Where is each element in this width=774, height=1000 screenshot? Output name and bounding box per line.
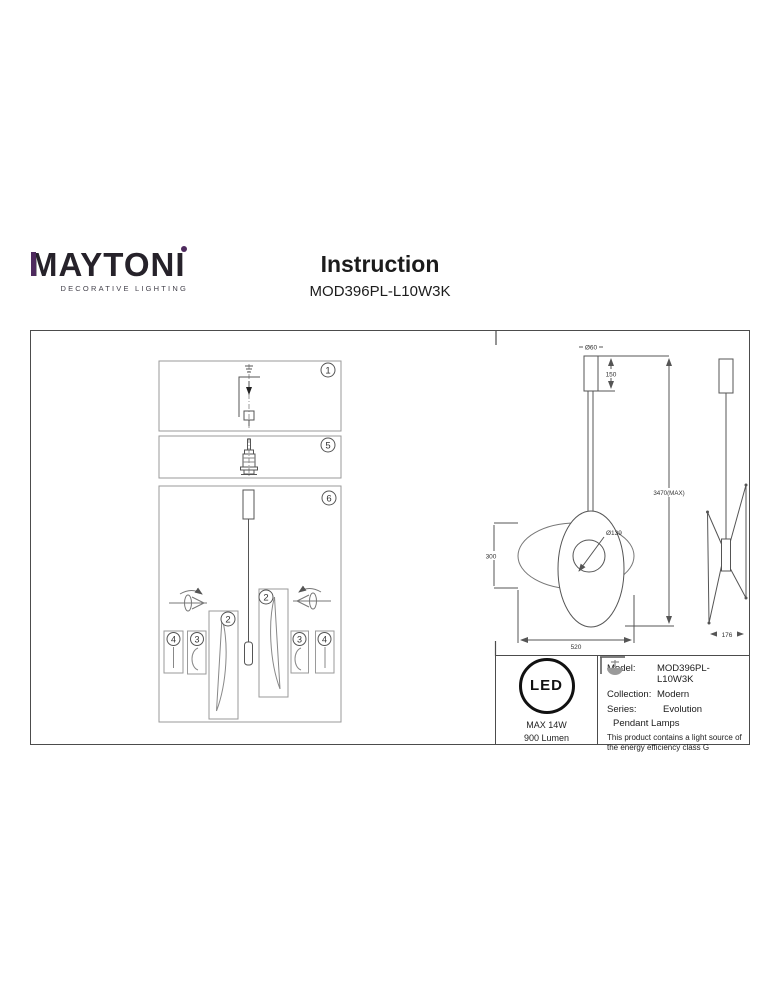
led-logo-icon: LED [519, 658, 575, 714]
brand-logo: MAYTONI DECORATIVE LIGHTING [30, 248, 190, 293]
dim-shade-height: 300 [486, 554, 497, 561]
led-text: LED [530, 677, 563, 694]
step-number-1: 1 [325, 365, 330, 376]
step-badge-1: 1 [321, 363, 335, 377]
diffuser-rotate-left [169, 591, 207, 612]
step-number-3-right: 3 [297, 634, 302, 644]
step-number-5: 5 [325, 440, 330, 451]
energy-efficiency-note: This product contains a light source of … [607, 733, 743, 754]
brand-text: MAYTONI [30, 246, 186, 283]
step1-drawing [239, 364, 260, 428]
step-number-6: 6 [326, 493, 331, 504]
max-power: MAX 14W [526, 720, 567, 730]
step-number-4-right: 4 [322, 634, 327, 644]
dim-side-depth: 176 [722, 632, 733, 639]
spec-row-series: Series: Evolution [607, 704, 743, 715]
step-badge-2-left: 2 [221, 612, 235, 626]
product-info-box: LED MAX 14W 900 Lumen Model: MOD396PL-L1… [495, 655, 750, 745]
brand-name: MAYTONI [30, 248, 190, 281]
instruction-sheet: 1 5 6 2 2 4 3 3 [30, 330, 750, 745]
step-badge-3-left: 3 [191, 633, 204, 646]
step-badge-5: 5 [321, 438, 335, 452]
collection-value: Modern [655, 689, 689, 700]
series-value: Evolution [655, 704, 702, 715]
step-badge-4-right: 4 [318, 633, 331, 646]
dim-hole-diameter: Ø139 [606, 530, 622, 537]
model-number: MOD396PL-L10W3K [250, 283, 510, 300]
led-cell: LED MAX 14W 900 Lumen [496, 656, 598, 744]
brand-accent-stroke [31, 252, 36, 276]
step-number-4-left: 4 [171, 634, 176, 644]
model-value: MOD396PL-L10W3K [655, 663, 743, 685]
title-block: Instruction MOD396PL-L10W3K [250, 251, 510, 300]
step-number-2-right: 2 [263, 592, 268, 603]
assembly-panels [159, 361, 341, 722]
dim-total-width: 520 [571, 644, 582, 651]
page-title: Instruction [250, 251, 510, 278]
step-badge-2-right: 2 [259, 590, 273, 604]
step5-drawing [241, 438, 258, 476]
step-number-3-left: 3 [194, 634, 199, 644]
step-badge-6: 6 [322, 491, 336, 505]
step-badge-4-left: 4 [167, 633, 180, 646]
spec-row-collection: Collection: Modern [607, 689, 743, 700]
diffuser-rotate-right [293, 589, 331, 610]
luminous-flux: 900 Lumen [524, 733, 569, 743]
step-badge-3-right: 3 [293, 633, 306, 646]
side-view-drawing [707, 359, 748, 634]
step-number-2-left: 2 [225, 614, 230, 625]
category-value: Pendant Lamps [607, 715, 680, 729]
brand-tagline: DECORATIVE LIGHTING [30, 284, 188, 293]
dim-canopy-height: 150 [606, 372, 617, 379]
panel-step6 [159, 486, 341, 722]
spec-row-category: Pendant Lamps [607, 715, 743, 729]
step6-drawing [164, 490, 334, 719]
brand-i-dot [181, 246, 187, 252]
dim-max-suspension: 3470(MAX) [653, 490, 684, 497]
pendant-lamp-icon [599, 656, 629, 678]
dim-canopy-diameter: Ø60 [585, 345, 598, 352]
series-label: Series: [607, 704, 655, 715]
collection-label: Collection: [607, 689, 655, 700]
spec-cell: Model: MOD396PL-L10W3K Collection: Moder… [598, 656, 749, 744]
